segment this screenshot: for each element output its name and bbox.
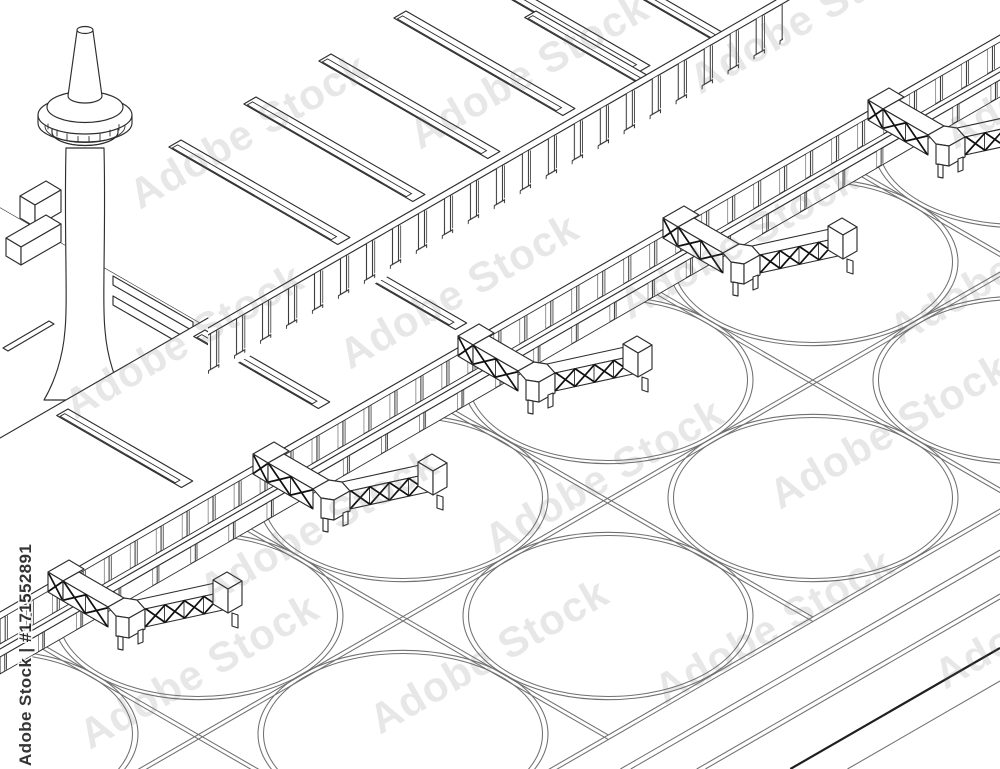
watermark-text: Adobe Stock bbox=[761, 343, 1000, 518]
stock-image-canvas: Adobe Stock Adobe Stock Adobe Stock Adob… bbox=[0, 0, 1000, 769]
watermark-credit-text: Adobe Stock | #171552891 bbox=[16, 544, 35, 766]
watermark-text: Adobe Stock bbox=[476, 388, 731, 563]
watermark-text: Adobe Stock bbox=[881, 178, 1000, 353]
airport-isometric-line-art: Adobe Stock Adobe Stock Adobe Stock Adob… bbox=[0, 0, 1000, 769]
watermark-text: Adobe Stock bbox=[361, 568, 616, 743]
